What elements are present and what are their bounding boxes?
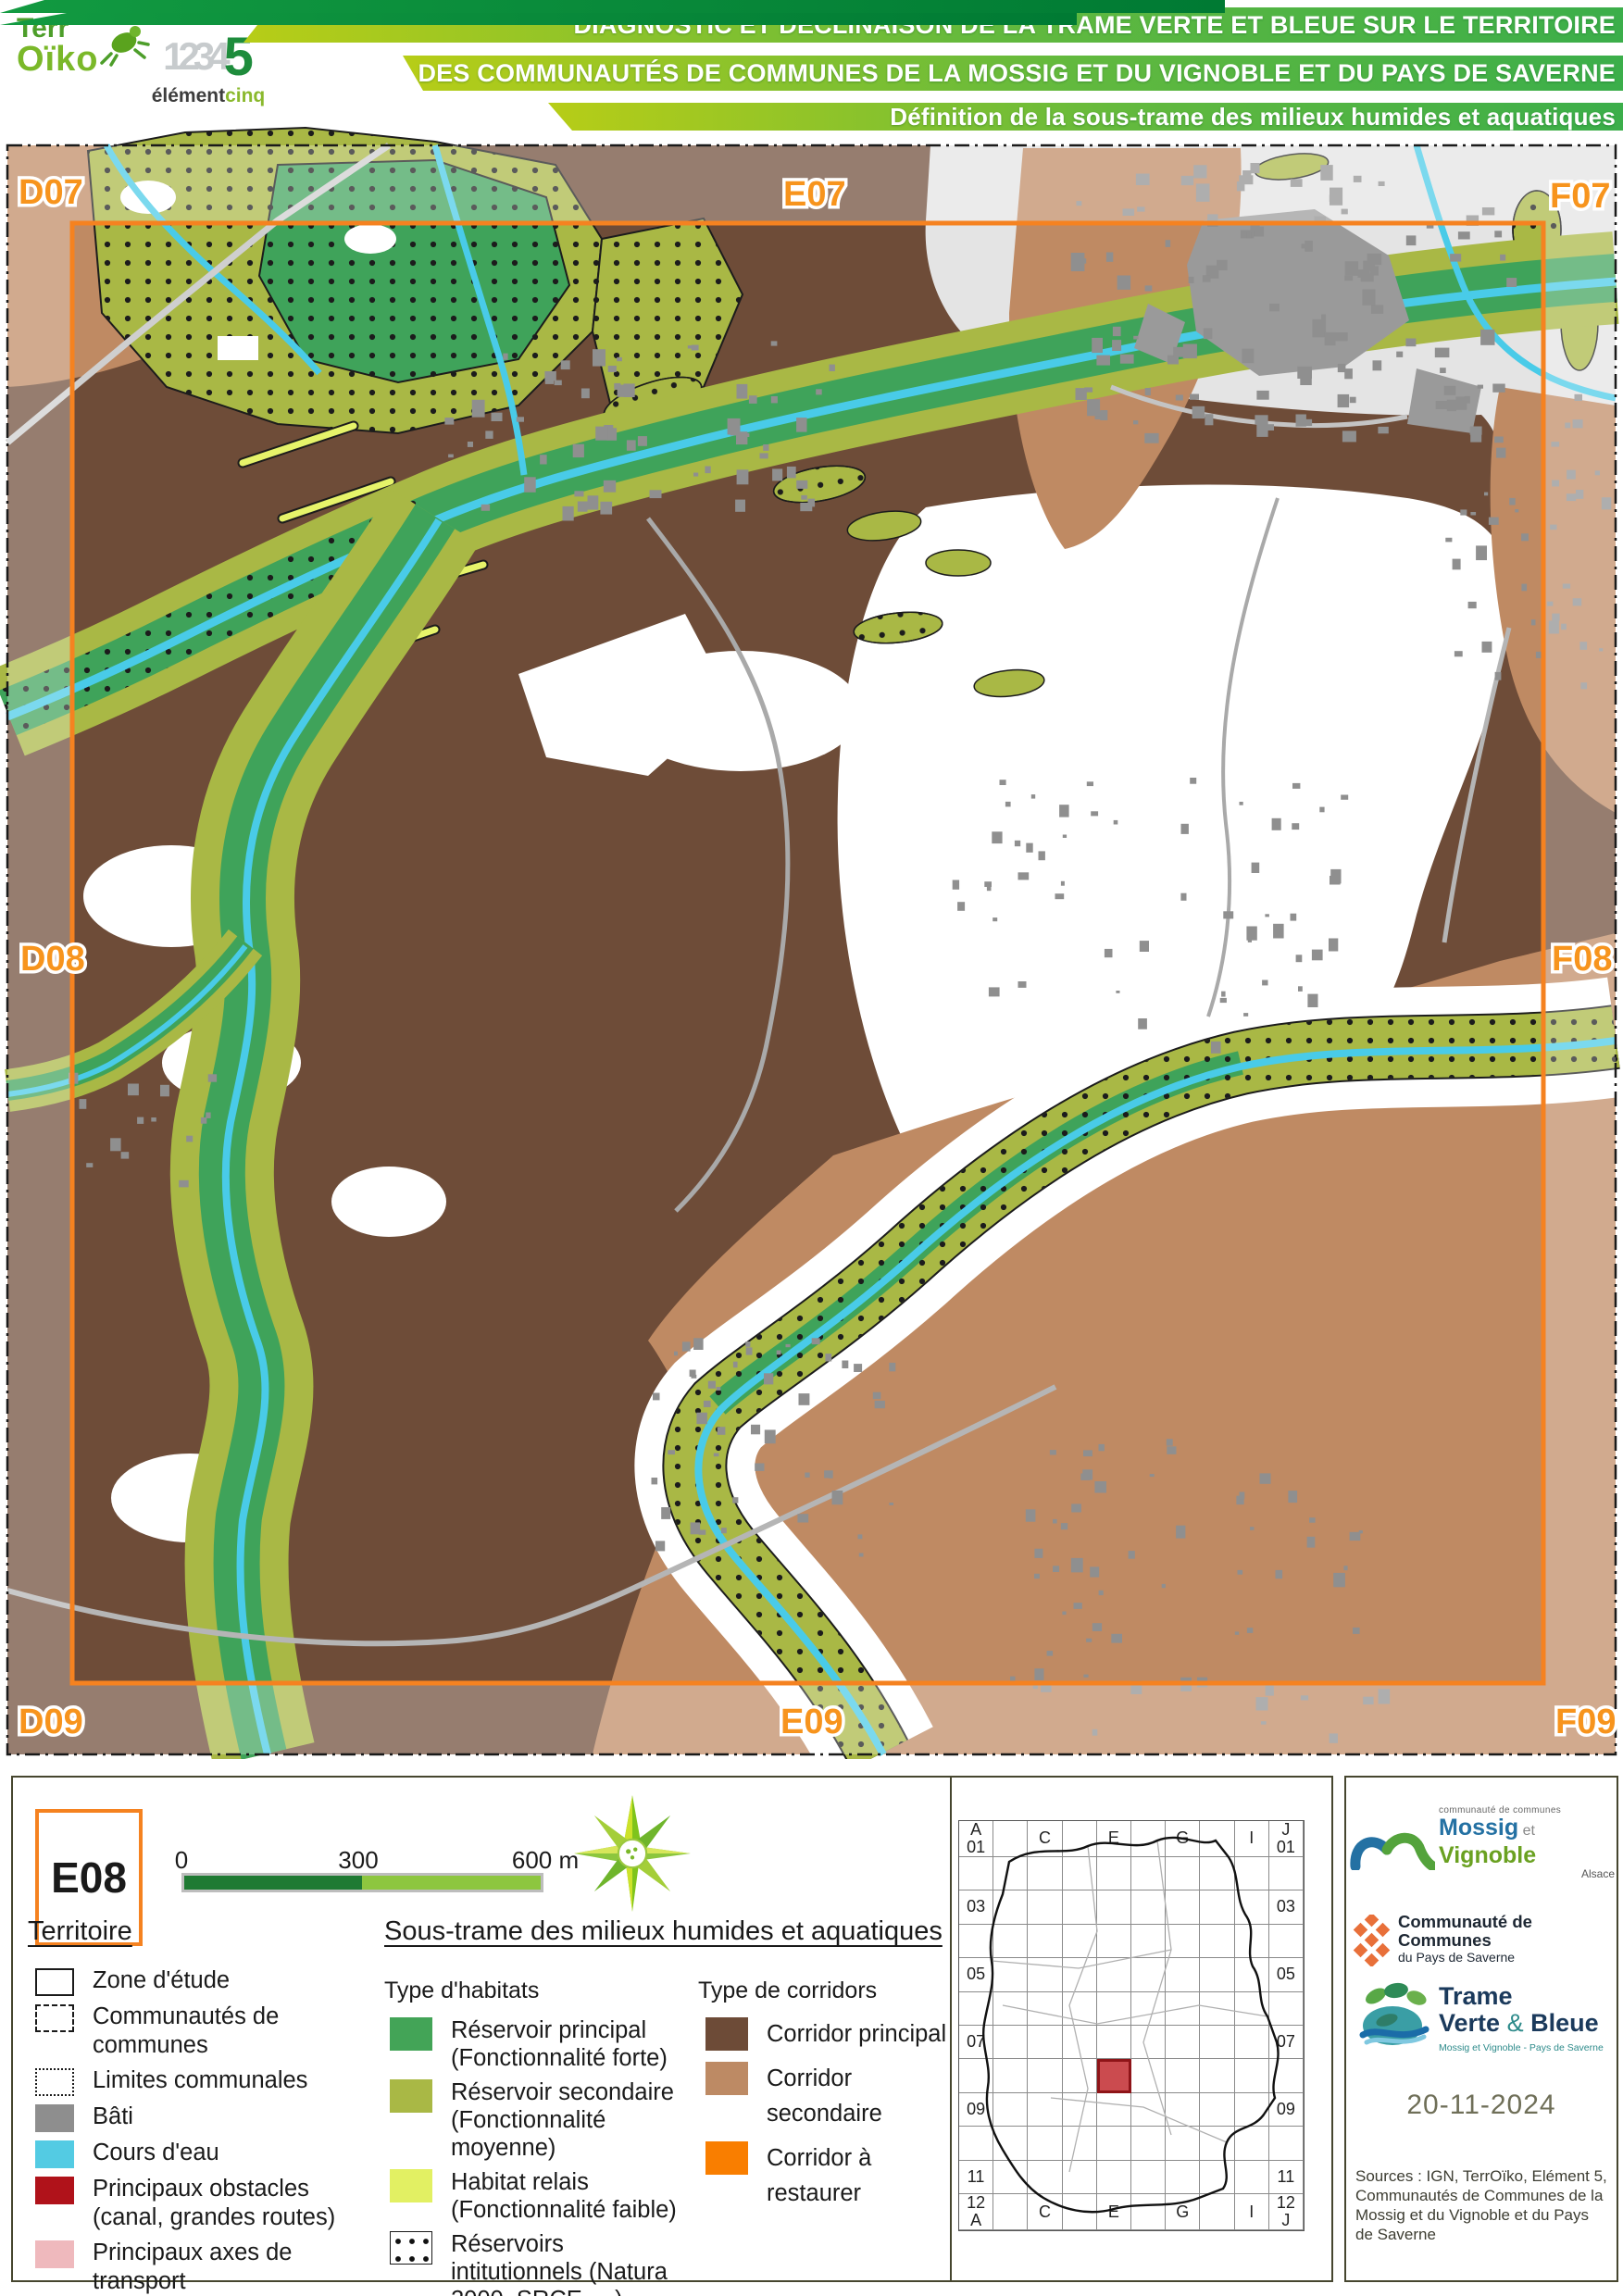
terroiko-logo: Terr Oïko [17,15,146,104]
minimap-cell: 12 A [959,2194,993,2230]
minimap-cell [1131,2161,1166,2194]
minimap-cell [1097,1890,1131,1924]
minimap-cell [993,2127,1028,2160]
minimap-cell [993,1857,1028,1890]
minimap-cell [1131,2059,1166,2092]
minimap-cell [1063,2093,1097,2127]
minimap-cell [993,2194,1028,2230]
minimap-cell: 05 [959,1958,993,1991]
legend-label: Principaux axes de transport [93,2239,370,2296]
logos-box: communauté de communes Mossig et Vignobl… [1344,1776,1618,2282]
minimap-cell [1063,1890,1097,1924]
minimap-cell [1235,2093,1269,2127]
legend-swatch [705,2062,748,2095]
mossig-region: Alsace [1439,1867,1615,1880]
minimap-cell [1269,1925,1304,1958]
minimap-cell [1063,2161,1097,2194]
minimap-cell [1200,1857,1234,1890]
minimap-cell [1028,1992,1062,2026]
minimap-cell [1063,1925,1097,1958]
vignoble-name: Vignoble [1439,1842,1536,1868]
grid-label-d08: D08 [20,940,85,979]
minimap-cell [1131,2026,1166,2059]
minimap-cell: C [1028,2194,1062,2230]
minimap-cell [1200,2194,1234,2230]
legend-swatch [35,2104,74,2132]
minimap-cell [1131,1925,1166,1958]
grid-label-e07: E07 [783,175,846,214]
minimap-cell [1235,1857,1269,1890]
corridors-legend: Corridor principal Corridor secondaire C… [705,2016,961,2220]
legend-item: Communautés de communes [35,2003,370,2060]
minimap-cell [1200,2059,1234,2092]
legend-box: E08 0 300 600 m Territoire [11,1776,963,2282]
minimap-cell [1200,2127,1234,2160]
minimap-cell: C [1028,1821,1062,1857]
minimap-cell [1131,2093,1166,2127]
minimap-cell [959,1992,993,2026]
grid-label-d09: D09 [19,1703,83,1741]
legend-swatch [35,2004,74,2032]
minimap-cell: 03 [1269,1890,1304,1924]
minimap-cell [1269,1857,1304,1890]
element5-name: élément [152,85,225,106]
minimap-cell: 07 [1269,2026,1304,2059]
legend-item: Corridor à restaurer [705,2140,961,2211]
corridors-subtitle: Type de corridors [698,1978,877,2004]
legend-label: Corridor principal [767,2016,946,2052]
minimap-cell [1235,2026,1269,2059]
minimap-cell [1097,2026,1131,2059]
minimap-cell [1166,2161,1200,2194]
minimap-cell [1166,1992,1200,2026]
minimap-cell [1028,2026,1062,2059]
scale-bar [181,1873,543,1892]
legend-item: Réservoir secondaire (Fonctionnalité moy… [390,2078,687,2162]
tvb-paw-icon [1355,1981,1433,2055]
map-sheet-page: Terr Oïko 12345 élémentcinq DIAGNOSTIC E… [0,0,1623,2296]
minimap-cell [959,1857,993,1890]
minimap-cell [1028,1857,1062,1890]
scale-tick-300: 300 [338,1846,378,1875]
minimap-cell [1131,1958,1166,1991]
minimap-cell [1269,2059,1304,2092]
minimap-cell: 11 [1269,2161,1304,2194]
minimap-cell [993,2161,1028,2194]
minimap-cell [1166,1958,1200,1991]
minimap-cell [1166,1857,1200,1890]
legend-label: Corridor secondaire [767,2061,961,2131]
locator-map-box: A 01CEGIJ 010303050507070909111112 ACEGI… [950,1776,1333,2282]
minimap-cell [993,1890,1028,1924]
banner-stripe-2 [0,13,1077,25]
minimap-cell [1166,2026,1200,2059]
minimap-cell [959,1925,993,1958]
banner-title-line2: DES COMMUNAUTÉS DE COMMUNES DE LA MOSSIG… [403,56,1623,91]
scale-tick-600: 600 m [512,1846,579,1875]
minimap-cell [1063,1857,1097,1890]
legend-label: Zone d'étude [93,1966,370,1995]
legend-swatch [705,2141,748,2175]
soustrame-title: Sous-trame des milieux humides et aquati… [384,1916,943,1947]
minimap-cell [1028,2161,1062,2194]
minimap-cell [1269,1992,1304,2026]
minimap-cell [993,1925,1028,1958]
legend-label: Réservoir secondaire (Fonctionnalité moy… [451,2078,687,2162]
minimap-cell [1063,1958,1097,1991]
legend-swatch [390,2169,432,2202]
minimap-cell [1097,1925,1131,1958]
tvb-name-line1: Trame [1439,1983,1615,2010]
habitats-legend: Réservoir principal (Fonctionnalité fort… [390,2016,687,2296]
minimap-cell [1097,2161,1131,2194]
legend-item: Cours d'eau [35,2139,370,2168]
legend-swatch [390,2231,432,2265]
minimap-cell [1131,1821,1166,1857]
legend-item: Réservoirs intitutionnels (Natura 2000, … [390,2230,687,2296]
legend-swatch [35,2240,74,2268]
minimap-cell [1200,1821,1234,1857]
minimap-cell [1097,2093,1131,2127]
minimap-cell: 11 [959,2161,993,2194]
territoire-title: Territoire [28,1916,132,1947]
mossig-vignoble-logo: communauté de communes Mossig et Vignobl… [1346,1803,1620,1883]
legend-label: Bâti [93,2103,370,2131]
minimap-cell: E [1097,1821,1131,1857]
white-patch [331,1167,446,1237]
minimap-cell [1166,2059,1200,2092]
mossig-wave-icon [1350,1828,1435,1870]
legend-label: Communautés de communes [93,2003,370,2060]
minimap-cell [1200,2161,1234,2194]
minimap-cell [1131,1857,1166,1890]
minimap-cell [1028,1890,1062,1924]
legend-item: Réservoir principal (Fonctionnalité fort… [390,2016,687,2072]
minimap-cell [1063,1821,1097,1857]
scale-bar-dark-segment [184,1876,362,1890]
minimap-cell: 09 [959,2093,993,2127]
saverne-mosaic-icon [1352,1915,1394,1966]
minimap-cell [993,1992,1028,2026]
legend-item: Bâti [35,2103,370,2132]
minimap-cell [993,1821,1028,1857]
map-svg: D07 E07 F07 D08 F08 D09 E09 F09 [0,109,1623,1759]
legend-label: Réservoirs intitutionnels (Natura 2000, … [451,2230,687,2296]
legend-label: Limites communales [93,2066,370,2095]
minimap-cell [1235,1958,1269,1991]
minimap-cell [959,2127,993,2160]
minimap-cell [959,2059,993,2092]
territoire-legend: Zone d'étude Communautés de communes Lim… [35,1966,370,2296]
minimap-cell [993,2059,1028,2092]
minimap-cell: I [1235,2194,1269,2230]
minimap-cell: G [1166,2194,1200,2230]
grid-label-d07: D07 [19,173,83,212]
minimap-cell [1200,1958,1234,1991]
minimap-cell [1166,2127,1200,2160]
minimap-cell [1097,1857,1131,1890]
minimap-cell: 09 [1269,2093,1304,2127]
tvb-subtitle: Mossig et Vignoble - Pays de Saverne [1439,2042,1615,2053]
minimap-cell [1235,2161,1269,2194]
minimap-cell: G [1166,1821,1200,1857]
grid-label-f08: F08 [1552,940,1612,979]
minimap-cell [1131,2127,1166,2160]
grid-label-e09: E09 [780,1703,843,1741]
minimap-cell [1131,1992,1166,2026]
minimap-cell [1200,1992,1234,2026]
minimap-grid: A 01CEGIJ 010303050507070909111112 ACEGI… [958,1820,1305,2231]
legend-swatch [35,2177,74,2204]
sheet-label: E08 [51,1853,127,1903]
minimap-cell: J 01 [1269,1821,1304,1857]
minimap-cell [1235,1992,1269,2026]
minimap-cell [1097,2127,1131,2160]
minimap-cell: E [1097,2194,1131,2230]
scale-bar-light-segment [362,1876,541,1890]
legend-label: Cours d'eau [93,2139,370,2167]
minimap-cell: 03 [959,1890,993,1924]
minimap-cell [1235,2127,1269,2160]
legend-item: Principaux obstacles (canal, grandes rou… [35,2175,370,2232]
legend-item: Limites communales [35,2066,370,2096]
minimap-cell [1235,2059,1269,2092]
minimap-cell [1097,1958,1131,1991]
element5-digits: 1234 [163,34,223,78]
legend-swatch [705,2017,748,2051]
mossig-name: Mossig [1439,1815,1518,1841]
minimap-cell: I [1235,1821,1269,1857]
legend-label: Habitat relais (Fonctionnalité faible) [451,2168,687,2224]
minimap-cell: A 01 [959,1821,993,1857]
minimap-cell [1166,1925,1200,1958]
sources-text: Sources : IGN, TerrOïko, Elément 5, Comm… [1355,2166,1609,2244]
minimap-cell: 12 J [1269,2194,1304,2230]
legend-swatch [390,2079,432,2113]
legend-swatch [35,2140,74,2168]
legend-swatch [35,2068,74,2096]
trame-verte-bleue-logo: Trame Verte & Bleue Mossig et Vignoble -… [1346,1979,1620,2081]
minimap-cell [1200,1890,1234,1924]
minimap-cell [1131,2194,1166,2230]
legend-item: Habitat relais (Fonctionnalité faible) [390,2168,687,2224]
saverne-name-line2: du Pays de Saverne [1398,1950,1617,1965]
minimap-cell [1235,1925,1269,1958]
scale-tick-0: 0 [175,1846,188,1875]
minimap-cell [1131,1890,1166,1924]
minimap-cell [1063,2059,1097,2092]
minimap-cell [993,2093,1028,2127]
map-date: 20-11-2024 [1346,2090,1617,2121]
compass-rose-icon [572,1793,693,1914]
minimap-cell [1235,1890,1269,1924]
minimap-cell [1063,2194,1097,2230]
minimap-cell [1166,2093,1200,2127]
minimap-cell: 05 [1269,1958,1304,1991]
legend-swatch [390,2017,432,2051]
map-canvas: D07 E07 F07 D08 F08 D09 E09 F09 [0,109,1623,1759]
minimap-cell [1028,1958,1062,1991]
legend-item: Principaux axes de transport [35,2239,370,2296]
minimap-cell [1097,1992,1131,2026]
minimap-cell [1200,1925,1234,1958]
saverne-name-line1: Communauté de Communes [1398,1913,1617,1950]
grid-label-f07: F07 [1550,177,1610,216]
legend-label: Principaux obstacles (canal, grandes rou… [93,2175,370,2232]
legend-label: Corridor à restaurer [767,2140,961,2211]
minimap-cell [993,1958,1028,1991]
minimap-cell [1028,2059,1062,2092]
minimap-cell [1028,2127,1062,2160]
banner-stripe-1 [0,0,1225,13]
legend-item: Corridor principal [705,2016,961,2052]
minimap-cell [1200,2093,1234,2127]
legend-item: Zone d'étude [35,1966,370,1996]
banner-band-2: DES COMMUNAUTÉS DE COMMUNES DE LA MOSSIG… [403,56,1623,91]
minimap-cell [1028,1925,1062,1958]
legend-item: Corridor secondaire [705,2061,961,2131]
minimap-cell [1063,1992,1097,2026]
minimap-cell [1200,2026,1234,2059]
legend-label: Réservoir principal (Fonctionnalité fort… [451,2016,687,2072]
minimap-cell [1063,2127,1097,2160]
pays-de-saverne-logo: Communauté de Communes du Pays de Savern… [1346,1907,1620,1981]
minimap-cell [1028,2093,1062,2127]
habitats-subtitle: Type d'habitats [384,1978,539,2004]
grid-label-f09: F09 [1555,1703,1616,1741]
minimap-cell [1063,2026,1097,2059]
element5-name-cinq: cinq [225,85,265,106]
minimap-cell [1166,1890,1200,1924]
minimap-cell [1097,2059,1131,2092]
minimap-cell [1269,2127,1304,2160]
minimap-cell: 07 [959,2026,993,2059]
legend-swatch [35,1968,74,1996]
minimap-cell [993,2026,1028,2059]
